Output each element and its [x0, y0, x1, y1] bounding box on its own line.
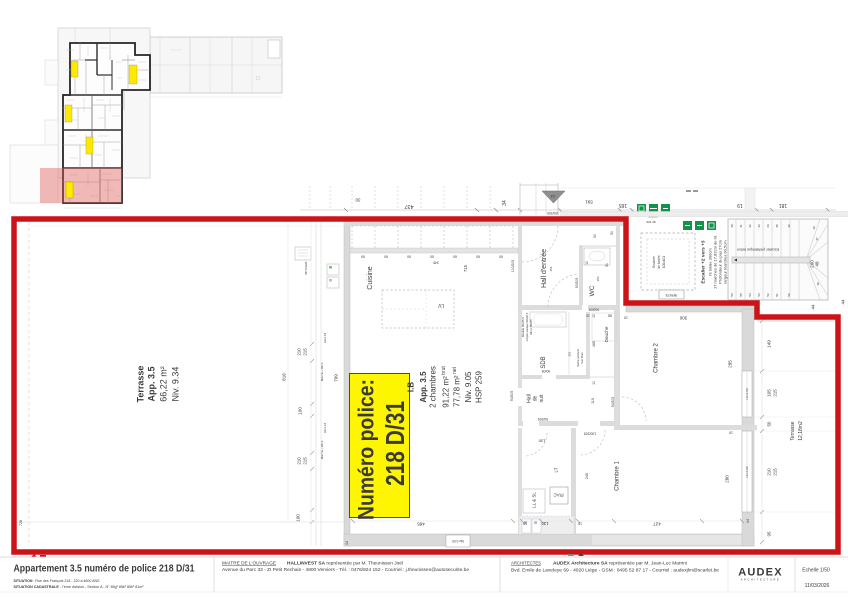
- svg-text:50: 50: [787, 293, 791, 297]
- svg-text:90/205: 90/205: [589, 308, 599, 312]
- svg-text:90/205: 90/205: [510, 391, 514, 401]
- svg-text:de: de: [533, 396, 539, 402]
- svg-text:10: 10: [578, 522, 582, 526]
- svg-text:de fumée: de fumée: [657, 255, 661, 269]
- svg-text:Exutoire: Exutoire: [652, 256, 656, 268]
- svg-text:Appartement 3.5 numéro de poli: Appartement 3.5 numéro de police 218 D/3…: [14, 564, 195, 575]
- svg-text:19: 19: [812, 226, 816, 230]
- svg-text:306: 306: [679, 316, 687, 321]
- svg-text:210: 210: [297, 348, 302, 356]
- svg-text:30: 30: [355, 198, 361, 203]
- svg-text:60: 60: [499, 255, 503, 259]
- svg-text:App. 3.5: App. 3.5: [147, 366, 157, 401]
- svg-text:Niv. 9.05: Niv. 9.05: [464, 371, 473, 403]
- svg-text:40: 40: [730, 224, 734, 228]
- svg-text:3.8: 3.8: [551, 194, 556, 198]
- svg-text:726: 726: [19, 520, 23, 526]
- svg-text:Chambre 2: Chambre 2: [654, 343, 660, 373]
- svg-text:Echelle 1/50: Echelle 1/50: [802, 568, 830, 574]
- svg-text:50: 50: [767, 421, 772, 426]
- svg-text:60: 60: [361, 255, 365, 259]
- svg-text:46: 46: [787, 224, 791, 228]
- svg-text:34: 34: [502, 200, 508, 206]
- svg-text:100: 100: [298, 407, 303, 415]
- svg-text:MAITRE DE L'OUVRAGE: MAITRE DE L'OUVRAGE: [222, 560, 276, 565]
- svg-text:105: 105: [767, 389, 772, 397]
- svg-text:Douche: Douche: [604, 326, 609, 342]
- svg-text:90/205: 90/205: [611, 397, 615, 407]
- svg-text:49: 49: [816, 282, 820, 286]
- svg-text:95: 95: [767, 531, 772, 536]
- svg-text:Cuisine: Cuisine: [367, 266, 374, 289]
- svg-text:66,22 m²: 66,22 m²: [159, 366, 169, 402]
- svg-text:100/205: 100/205: [547, 211, 559, 215]
- svg-text:AUDEX Architecture SA représen: AUDEX Architecture SA représentée par M.…: [553, 560, 687, 565]
- svg-text:Noir Plum: Noir Plum: [580, 352, 584, 363]
- svg-text:181: 181: [779, 202, 788, 208]
- svg-text:Hiv 0.00: Hiv 0.00: [745, 466, 749, 477]
- svg-text:Terrasse: Terrasse: [136, 366, 146, 403]
- svg-text:165: 165: [592, 341, 596, 347]
- svg-text:SITUATION : Rue des François 2: SITUATION : Rue des François 218 - 220 à…: [14, 578, 100, 583]
- svg-text:485: 485: [417, 522, 425, 527]
- svg-text:215: 215: [303, 348, 308, 356]
- svg-text:54: 54: [748, 293, 752, 297]
- svg-text:51: 51: [775, 293, 779, 297]
- svg-text:110: 110: [591, 398, 595, 404]
- svg-text:345: 345: [433, 261, 439, 265]
- svg-text:Hiv 0.18: Hiv 0.18: [323, 332, 327, 343]
- svg-text:60: 60: [407, 255, 411, 259]
- svg-text:ARCHITECTURE: ARCHITECTURE: [741, 578, 781, 582]
- svg-text:240: 240: [585, 473, 589, 479]
- svg-text:Echelle: Echelle: [666, 294, 678, 298]
- svg-text:Avenue du Parc 33 - ZI Petit R: Avenue du Parc 33 - ZI Petit Rechain - 4…: [222, 567, 469, 572]
- svg-text:816: 816: [282, 373, 287, 381]
- svg-text:48: 48: [815, 261, 820, 267]
- svg-text:165: 165: [619, 202, 628, 208]
- svg-text:90/205: 90/205: [575, 278, 579, 288]
- svg-text:Hall d'entrée: Hall d'entrée: [541, 249, 548, 288]
- svg-text:41: 41: [739, 224, 743, 228]
- svg-text:HALLINVEST SA représentée par: HALLINVEST SA représentée par M. Theunis…: [287, 560, 403, 565]
- svg-text:Marche +18cm: Marche +18cm: [320, 362, 324, 381]
- svg-text:HSP 259: HSP 259: [475, 371, 484, 403]
- svg-text:60: 60: [384, 255, 388, 259]
- svg-text:App. 3.5: App. 3.5: [419, 371, 428, 403]
- svg-text:60: 60: [453, 255, 457, 259]
- svg-text:50: 50: [610, 231, 614, 235]
- svg-text:Bvd. Emile de Laveleye 69 - 40: Bvd. Emile de Laveleye 69 - 4020 Liège -…: [511, 568, 719, 573]
- svg-text:Numéro police:: Numéro police:: [354, 379, 379, 520]
- svg-text:43: 43: [757, 224, 761, 228]
- svg-text:100/205: 100/205: [584, 432, 596, 436]
- svg-text:LV: LV: [437, 302, 443, 308]
- svg-text:427: 427: [653, 522, 661, 527]
- svg-text:Seche-serviette: Seche-serviette: [576, 348, 580, 367]
- svg-text:56: 56: [730, 293, 734, 297]
- svg-text:10: 10: [585, 261, 589, 265]
- svg-text:12,18m2: 12,18m2: [798, 421, 804, 441]
- svg-text:Niv. 9.34: Niv. 9.34: [171, 367, 181, 402]
- svg-text:Hiv 0.00: Hiv 0.00: [745, 388, 749, 399]
- svg-text:I.B: I.B: [407, 382, 416, 392]
- svg-text:47: 47: [815, 237, 819, 241]
- svg-text:591: 591: [585, 200, 593, 205]
- svg-text:215: 215: [303, 457, 308, 465]
- svg-text:53: 53: [757, 293, 761, 297]
- svg-text:901.48: 901.48: [646, 220, 656, 224]
- svg-text:44: 44: [746, 519, 750, 523]
- svg-text:SITUATION CADASTRALE : 7ème di: SITUATION CADASTRALE : 7ème division - S…: [14, 584, 145, 589]
- svg-text:55: 55: [739, 293, 743, 297]
- svg-text:WC: WC: [589, 285, 596, 296]
- svg-text:19: 19: [737, 202, 743, 208]
- svg-text:437: 437: [404, 203, 413, 209]
- svg-text:52: 52: [766, 293, 770, 297]
- svg-text:100: 100: [296, 514, 301, 522]
- svg-text:251: 251: [568, 351, 572, 356]
- svg-text:154: 154: [596, 276, 600, 281]
- svg-text:2 chambres: 2 chambres: [429, 366, 438, 408]
- svg-text:100/205: 100/205: [511, 260, 515, 272]
- svg-text:LL & SL: LL & SL: [532, 492, 537, 508]
- svg-text:130: 130: [538, 439, 545, 444]
- svg-text:ARCHITECTES: ARCHITECTES: [511, 560, 541, 565]
- svg-text:90/205: 90/205: [538, 417, 548, 421]
- svg-text:PlAC: PlAC: [553, 493, 564, 498]
- svg-text:nuit: nuit: [539, 394, 545, 403]
- svg-text:44: 44: [811, 304, 816, 309]
- svg-text:91: 91: [605, 263, 609, 267]
- svg-text:100x101: 100x101: [662, 256, 666, 268]
- svg-text:largeur marches 90,5cm: largeur marches 90,5cm: [723, 240, 728, 284]
- svg-text:130: 130: [541, 521, 549, 526]
- svg-text:60: 60: [430, 255, 434, 259]
- svg-text:215: 215: [773, 468, 778, 476]
- svg-text:799: 799: [334, 374, 339, 382]
- svg-text:11/03/2026: 11/03/2026: [805, 583, 830, 589]
- svg-text:10: 10: [592, 314, 596, 318]
- svg-text:Escalier préfabriqué béton: Escalier préfabriqué béton: [737, 248, 779, 252]
- svg-text:10: 10: [592, 381, 596, 385]
- svg-text:50: 50: [593, 234, 597, 238]
- svg-text:10: 10: [523, 522, 527, 526]
- svg-text:88: 88: [608, 314, 612, 318]
- svg-text:210: 210: [767, 468, 772, 476]
- svg-text:44: 44: [345, 541, 349, 545]
- svg-text:210: 210: [297, 457, 302, 465]
- svg-text:Chambre 1: Chambre 1: [615, 461, 621, 491]
- svg-text:280: 280: [725, 475, 730, 483]
- svg-text:BP 84x94: BP 84x94: [304, 261, 308, 274]
- svg-text:LT: LT: [554, 467, 559, 472]
- svg-text:90/05: 90/05: [542, 369, 551, 373]
- svg-text:285: 285: [728, 360, 733, 368]
- svg-text:Terrasse: Terrasse: [790, 421, 796, 440]
- svg-text:AUDEX: AUDEX: [738, 567, 783, 579]
- svg-text:149: 149: [767, 340, 772, 348]
- svg-text:218 D/31: 218 D/31: [380, 401, 410, 486]
- svg-text:Miroir 90x45: Miroir 90x45: [529, 319, 533, 335]
- svg-text:44: 44: [841, 299, 846, 304]
- svg-text:151: 151: [549, 266, 553, 271]
- svg-text:SDB: SDB: [541, 356, 547, 368]
- svg-text:Marche +18cm: Marche +18cm: [320, 440, 324, 459]
- svg-text:42: 42: [748, 224, 752, 228]
- svg-text:Hiv 0.18: Hiv 0.18: [323, 422, 327, 433]
- svg-text:10: 10: [586, 314, 590, 318]
- svg-text:Niv 0.00: Niv 0.00: [452, 539, 464, 543]
- svg-text:Escalier +2 vers +3: Escalier +2 vers +3: [701, 240, 707, 284]
- svg-text:10: 10: [729, 431, 733, 435]
- svg-text:44: 44: [766, 224, 770, 228]
- svg-text:45: 45: [775, 224, 779, 228]
- svg-text:715: 715: [463, 264, 468, 272]
- svg-text:60: 60: [476, 255, 480, 259]
- svg-text:215: 215: [773, 389, 778, 397]
- svg-text:10: 10: [624, 316, 628, 320]
